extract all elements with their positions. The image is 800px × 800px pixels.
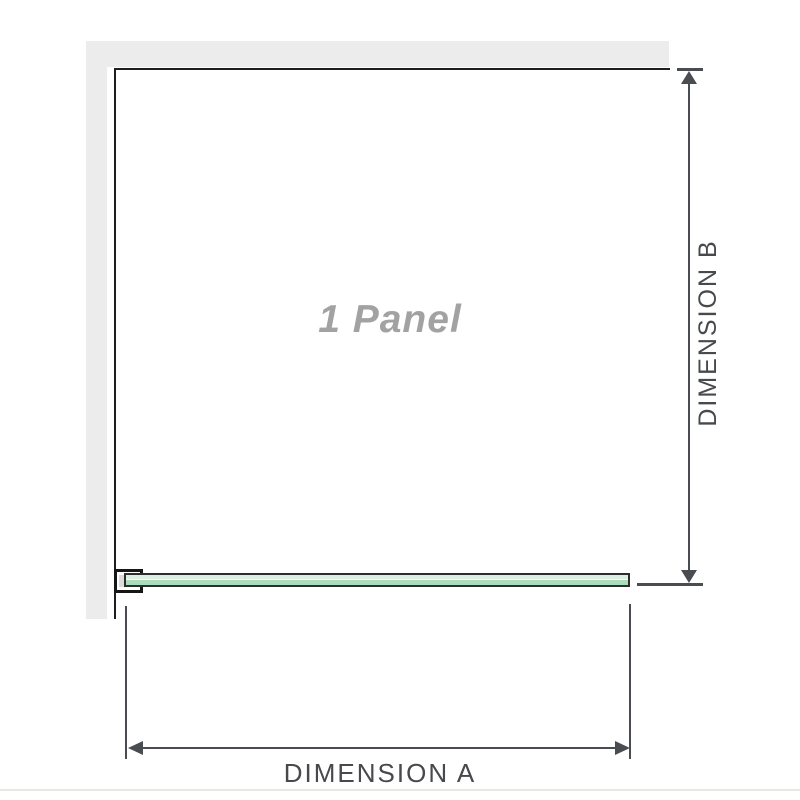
panel-count-label: 1 Panel (190, 298, 590, 342)
dimension-a-line (132, 747, 622, 749)
wall-top-segment (86, 41, 669, 67)
dimension-a-right-extension (629, 604, 631, 759)
bottom-divider (0, 789, 800, 791)
dimension-b-line (688, 76, 690, 578)
arrow-up-icon (681, 71, 697, 84)
glass-panel-bar (124, 573, 630, 587)
arrow-right-icon (615, 741, 630, 755)
dimension-b-label: DIMENSION B (693, 223, 723, 443)
panel-outline-left (114, 68, 116, 619)
diagram-canvas: 1 Panel DIMENSION B DIMENSION A (0, 0, 800, 800)
wall-left-segment (86, 41, 107, 619)
dimension-a-left-extension (125, 606, 127, 759)
arrow-left-icon (128, 741, 143, 755)
dimension-a-label: DIMENSION A (240, 758, 520, 789)
dimension-b-bottom-tick (637, 583, 703, 586)
panel-outline-top (114, 68, 670, 70)
arrow-down-icon (681, 570, 697, 583)
